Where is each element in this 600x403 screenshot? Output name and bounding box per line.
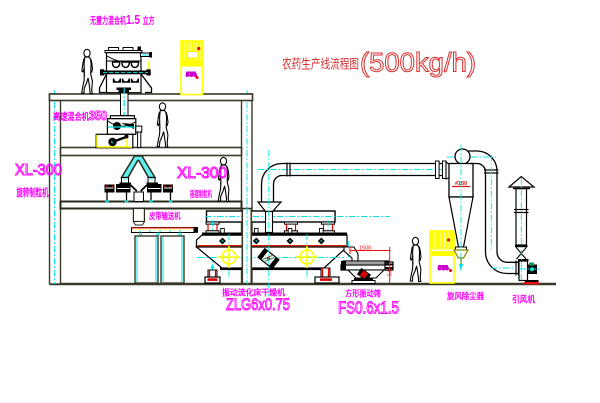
svg-text:农药生产线流程图: 农药生产线流程图 bbox=[282, 57, 359, 72]
svg-text:无重力混合机1.5 立方: 无重力混合机1.5 立方 bbox=[89, 13, 155, 27]
svg-text:XL-300: XL-300 bbox=[177, 165, 227, 182]
svg-text:ZLG6x0.75: ZLG6x0.75 bbox=[226, 295, 290, 314]
svg-text:摇摆制粒机: 摇摆制粒机 bbox=[190, 189, 212, 199]
svg-text:FS0.6x1.5: FS0.6x1.5 bbox=[338, 298, 399, 318]
svg-text:旋转制粒机: 旋转制粒机 bbox=[16, 186, 49, 199]
svg-text:XL-300: XL-300 bbox=[15, 162, 62, 179]
svg-text:(500kg/h): (500kg/h) bbox=[360, 48, 476, 78]
svg-text:旋风除尘器: 旋风除尘器 bbox=[446, 291, 484, 301]
svg-text:540: 540 bbox=[388, 267, 394, 276]
svg-text:皮带输送机: 皮带输送机 bbox=[148, 211, 181, 221]
svg-text:引风机: 引风机 bbox=[512, 294, 535, 305]
svg-text:1500: 1500 bbox=[359, 246, 371, 252]
